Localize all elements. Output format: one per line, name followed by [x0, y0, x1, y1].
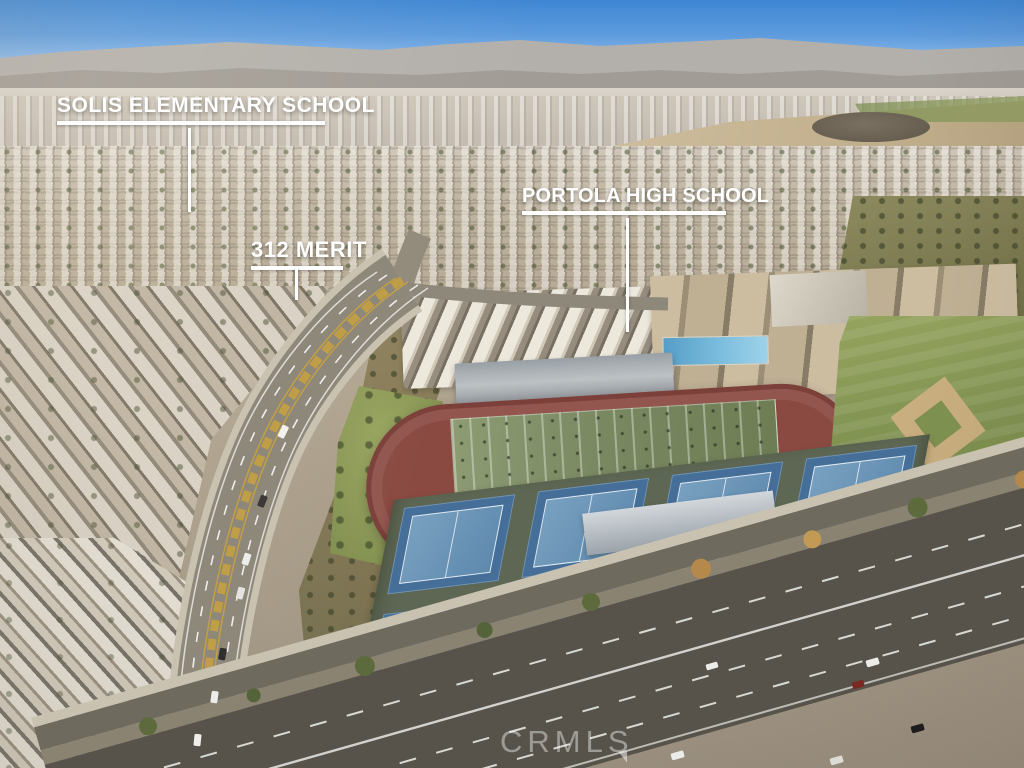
- crmls-watermark: CRMLS: [500, 724, 634, 760]
- pointer-line-merit: [295, 267, 298, 300]
- label-solis-underline: [57, 121, 325, 125]
- aerial-photo: SOLIS ELEMENTARY SCHOOL PORTOLA HIGH SCH…: [0, 0, 1024, 768]
- label-portola-high: PORTOLA HIGH SCHOOL: [522, 185, 726, 215]
- label-solis-text: SOLIS ELEMENTARY SCHOOL: [57, 94, 375, 117]
- pointer-line-solis: [188, 128, 191, 212]
- street-north-stub: [402, 234, 420, 282]
- label-312-merit: 312 MERIT: [251, 237, 343, 270]
- boulevard: [31, 402, 1024, 768]
- label-merit-text: 312 MERIT: [251, 237, 367, 262]
- pointer-line-portola: [626, 218, 629, 332]
- label-portola-underline: [522, 211, 726, 215]
- label-solis-elementary: SOLIS ELEMENTARY SCHOOL: [57, 94, 325, 125]
- label-portola-text: PORTOLA HIGH SCHOOL: [522, 185, 769, 207]
